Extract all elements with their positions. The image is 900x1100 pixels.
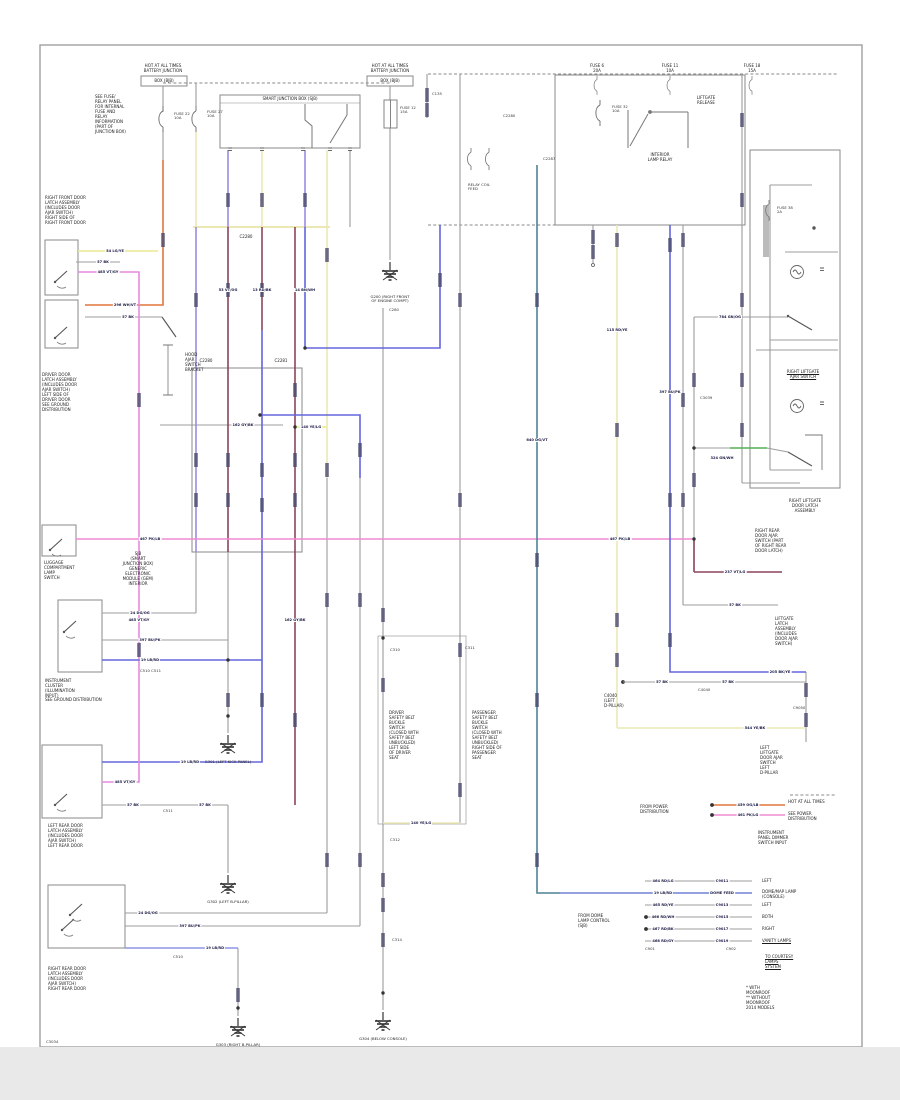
passenger-belt-label: PASSENGER SAFETY BELT BUCKLE SWITCH (CLO… — [472, 710, 502, 760]
wire-code: 784 GN/OG — [718, 315, 742, 319]
right-liftgate-latch-box — [750, 150, 840, 488]
from-power-label: FROM POWER DISTRIBUTION — [640, 804, 669, 814]
wire-code: C9019 — [715, 939, 730, 943]
legend-right-6: VANITY LAMPS — [762, 938, 791, 943]
connector-label: C2280 — [503, 114, 515, 118]
fuse-label: FUSE 38 2A — [777, 206, 793, 215]
driver-door-label: DRIVER DOOR LATCH ASSEMBLY (INCLUDES DOO… — [42, 372, 77, 412]
legend-left-note: FROM DOME LAMP CONTROL (SJB) — [578, 913, 610, 928]
cluster-extra: SEE GROUND DISTRIBUTION — [45, 697, 102, 702]
connector-label: C4040 — [698, 688, 710, 692]
connector-label: C510 — [173, 955, 183, 959]
dimmer-note: INSTRUMENT PANEL DIMMER SWITCH INPUT — [758, 830, 788, 845]
wire-code: 237 VT/LG — [724, 570, 747, 574]
right-liftgate-ajar-label: RIGHT LIFTGATE AJAR SWITCH — [787, 369, 819, 379]
wire-code: 19 LB/RD — [140, 658, 160, 662]
bcm-label: LIFTGATE RELEASE — [697, 95, 716, 105]
wire-code: 397 BU/PK — [138, 638, 161, 642]
connector-label: C9050 — [793, 706, 805, 710]
wire-code: 53 VT/OG — [218, 288, 239, 292]
connector-label: C2287 — [543, 157, 555, 161]
magenta-wire — [78, 272, 139, 782]
driver-latch-box — [45, 300, 78, 348]
wire-code: 397 BU/PK — [178, 924, 201, 928]
power-bus-dashed-lines — [163, 74, 838, 795]
wire-code: 57 BK — [121, 315, 135, 319]
hood-switch-label: HOOD AJAR SWITCH BRACKET — [185, 352, 203, 372]
wire-code: 467 PK/LB — [139, 537, 162, 541]
bjb-bar-a: BOX (BJB) — [154, 78, 173, 83]
wire-code: 485 VT/GY — [114, 780, 137, 784]
instrument-cluster-box — [58, 600, 102, 672]
wire-code: 57 BK — [655, 680, 669, 684]
door-ajar-switch — [54, 327, 67, 344]
wire-code: 466 RD/WH — [651, 915, 676, 919]
bjb-bar-b: BOX (BJB) — [380, 78, 399, 83]
cluster-switch — [63, 621, 76, 638]
wire-code: C9013 — [715, 903, 730, 907]
right-front-latch-box — [45, 240, 78, 295]
left-liftgate-ajar-label: LEFT LIFTGATE DOOR AJAR SWITCH LEFT D-PI… — [760, 745, 783, 775]
rr-ajar-label: RIGHT REAR DOOR AJAR SWITCH (PART OF RIG… — [755, 528, 786, 553]
wire-code: 19 LB/RD — [180, 760, 200, 764]
connector-label: C3039 — [700, 396, 712, 400]
teal-wire — [537, 165, 752, 893]
wire-code: 465 RD/YE — [652, 903, 675, 907]
legend-right-2: DOME/MAP LAMP (CONSOLE) — [762, 889, 796, 899]
ground-label: G200 (RIGHT FRONT OF ENGINE COMPT) — [371, 295, 410, 304]
connector-label: C311 — [465, 646, 475, 650]
wire-code: 485 VT/GY — [97, 270, 120, 274]
wire-code: 464 RD/LG — [651, 879, 674, 883]
connector-label: C2280 — [240, 234, 253, 239]
left-rear-latch-box — [42, 745, 102, 818]
wire-code: 459 OG/LB — [736, 803, 759, 807]
wire-code: 57 BK — [728, 603, 742, 607]
door-ajar-switch — [54, 271, 67, 288]
blue-main — [102, 330, 262, 762]
door-ajar-switch — [69, 904, 82, 921]
sjb-center-box — [192, 368, 302, 552]
wire-code: 24 DG/OG — [137, 911, 159, 915]
fuse-label: FUSE 22 10A — [174, 112, 190, 121]
ground-label: G302 (LEFT B-PILLAR) — [207, 900, 248, 904]
wire-code: 57 BK — [198, 803, 212, 807]
wire-code: 468 RD/GY — [651, 939, 674, 943]
ground-symbols — [220, 262, 398, 1036]
connector-label: C2281 — [275, 358, 288, 363]
luggage-lamp-switch-box — [42, 525, 76, 556]
wire-code: 115 RD/YE — [606, 328, 629, 332]
wire-code: 397 BU/PK — [658, 390, 681, 394]
wire-code: 205 BK/YE — [769, 670, 792, 674]
wire-code: 461 PK/LG — [737, 813, 760, 817]
rf-door-label: RIGHT FRONT DOOR LATCH ASSEMBLY (INCLUDE… — [45, 195, 86, 225]
ground-label: G304 (BELOW CONSOLE) — [359, 1037, 407, 1041]
fuse-label: FUSE 18 15A — [744, 63, 761, 73]
colored-wires — [76, 132, 806, 948]
to-courtesy-note: TO COURTESY LAMPS SYSTEM — [765, 954, 793, 969]
door-ajar-switch — [54, 794, 67, 811]
relay-label: INTERIOR LAMP RELAY — [648, 152, 673, 162]
wire-code: 140 YE/LG — [300, 425, 322, 429]
hood-switch — [162, 317, 176, 337]
fuse-label: FUSE 32 10A — [612, 105, 628, 114]
hot-label-a: HOT AT ALL TIMES BATTERY JUNCTION — [144, 63, 182, 73]
wire-code: 162 GY/BK — [231, 423, 254, 427]
hot-small-label: HOT AT ALL TIMES — [788, 799, 825, 804]
wire-code: 485 VT/GY — [128, 618, 151, 622]
right-liftgate-latch-label: RIGHT LIFTGATE DOOR LATCH ASSEMBLY — [789, 498, 821, 513]
wire-code: 13 RD/BK — [252, 288, 273, 292]
wire-code: 57 BK — [721, 680, 735, 684]
fuse-label: FUSE 12 15A — [400, 106, 416, 115]
legend-right-1: LEFT — [762, 878, 771, 883]
lamp-icon — [791, 266, 804, 279]
ground-label: G303 (RIGHT B-PILLAR) — [216, 1043, 260, 1047]
lamp-switch — [49, 539, 62, 556]
cluster-label: INSTRUMENT CLUSTER (ILLUMINATION INPUT) — [45, 678, 75, 698]
wire-code: C9011 — [715, 879, 730, 883]
wire-code: 640 DG/VT — [525, 438, 548, 442]
wire-code: 57 BK — [126, 803, 140, 807]
wire-code: 162 GY/BK — [283, 618, 306, 622]
batt-small-label: SEE POWER DISTRIBUTION — [788, 811, 817, 821]
connector-label: C314 — [392, 938, 402, 942]
connector-label: C280 — [389, 308, 399, 312]
wire-code: 140 YE/LG — [410, 821, 432, 825]
sjb-header: SMART JUNCTION BOX (SJB) — [262, 96, 317, 101]
orange-wire — [85, 160, 163, 305]
sjb-interior — [305, 104, 347, 148]
connector-label: C135 — [432, 92, 442, 96]
right-rear-latch-box — [48, 885, 125, 948]
ground-label: G301 (LEFT KICK PANEL) — [205, 760, 251, 764]
wire-code: 19 LB/RD — [205, 946, 225, 950]
wire-code: 296 WH/VT — [113, 303, 137, 307]
note-top-left: SEE FUSE/ RELAY PANEL FOR INTERNAL FUSE … — [95, 94, 126, 134]
connector-note: C4040 (LEFT D-PILLAR) — [604, 693, 624, 708]
body-control-module-box — [555, 75, 745, 225]
corner-note: * WITH MOONROOF ** WITHOUT MOONROOF 2014… — [746, 985, 774, 1010]
liftgate-latch-label: LIFTGATE LATCH ASSEMBLY (INCLUDES DOOR A… — [775, 616, 798, 646]
connector-label: C310 — [390, 648, 400, 652]
fuse-label: FUSE 6 20A — [590, 63, 604, 73]
wire-code: 57 BK — [96, 260, 110, 264]
hot-label-b: HOT AT ALL TIMES BATTERY JUNCTION — [371, 63, 409, 73]
wiring-diagram-page: HOT AT ALL TIMES BATTERY JUNCTION BOX (B… — [0, 0, 900, 1100]
wire-code: 467 RD/BK — [651, 927, 674, 931]
fuse-label: FUSE 11 10A — [662, 63, 679, 73]
wire-code: 54 LG/YE — [105, 249, 125, 253]
wire-code: 324 GN/WH — [710, 456, 735, 460]
wire-code: DOME FEED — [709, 891, 735, 895]
wire-code: C9015 — [715, 915, 730, 919]
component-boxes — [42, 75, 840, 948]
connector-label: C511 — [163, 809, 173, 813]
fuse-label: FUSE 27 10A — [207, 110, 223, 119]
junction-dots — [226, 264, 714, 1010]
connector-label: C902 — [726, 947, 736, 951]
wire-code: 24 DG/OG — [129, 611, 151, 615]
gray-wires — [76, 74, 838, 1016]
connector-label: C510 C511 — [140, 669, 161, 673]
wire-code: C9017 — [715, 927, 730, 931]
legend-right-3: LEFT — [762, 902, 771, 907]
cluster-note: RELAY COIL FEED — [468, 183, 490, 192]
wire-code: 467 PK/LB — [609, 537, 632, 541]
luggage-switch-label: LUGGAGE COMPARTMENT LAMP SWITCH — [44, 560, 75, 580]
lamp-icon — [791, 400, 804, 413]
wire-code: 14 BN/WH — [294, 288, 316, 292]
lr-door-label: LEFT REAR DOOR LATCH ASSEMBLY (INCLUDES … — [48, 823, 83, 848]
page-margin — [0, 1047, 900, 1100]
connector-label: C3034 — [46, 1040, 58, 1044]
wire-code: 544 YE/BK — [744, 726, 767, 730]
legend-right-4: BOTH — [762, 914, 773, 919]
driver-belt-label: DRIVER SAFETY BELT BUCKLE SWITCH (CLOSED… — [389, 710, 419, 760]
wire-code: 19 LB/RD — [653, 891, 673, 895]
legend-right-5: RIGHT — [762, 926, 775, 931]
sjb2-label: SJB (SMART JUNCTION BOX) GENERIC ELECTRO… — [123, 551, 154, 586]
door-ajar-switch — [61, 919, 74, 936]
connector-label: C901 — [645, 947, 655, 951]
relay-symbol — [628, 110, 688, 148]
rr-door-label: RIGHT REAR DOOR LATCH ASSEMBLY (INCLUDES… — [48, 966, 86, 991]
connector-label: C312 — [390, 838, 400, 842]
